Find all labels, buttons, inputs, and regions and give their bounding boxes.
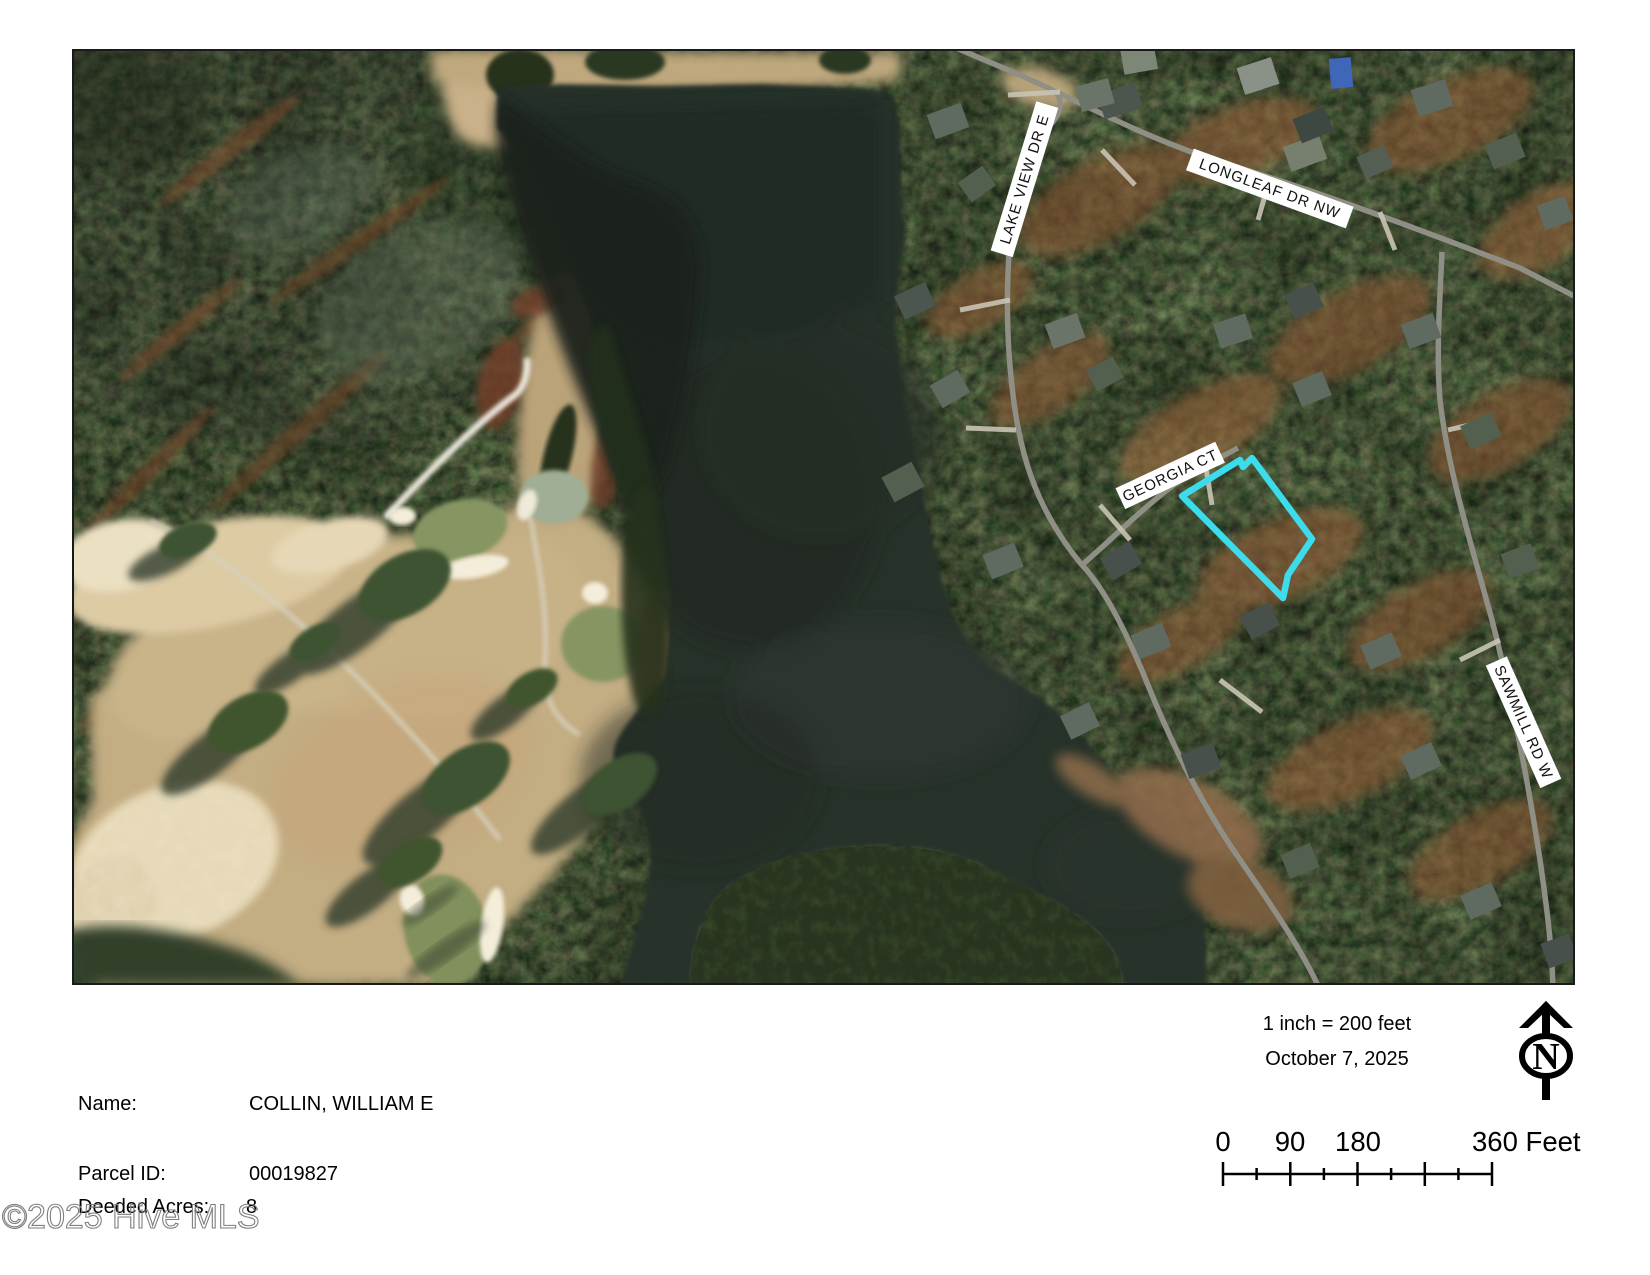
svg-text:360 Feet: 360 Feet [1472, 1126, 1581, 1157]
svg-text:0: 0 [1215, 1126, 1230, 1157]
svg-text:N: N [1532, 1036, 1559, 1078]
svg-text:180: 180 [1335, 1126, 1381, 1157]
svg-text:90: 90 [1275, 1126, 1306, 1157]
